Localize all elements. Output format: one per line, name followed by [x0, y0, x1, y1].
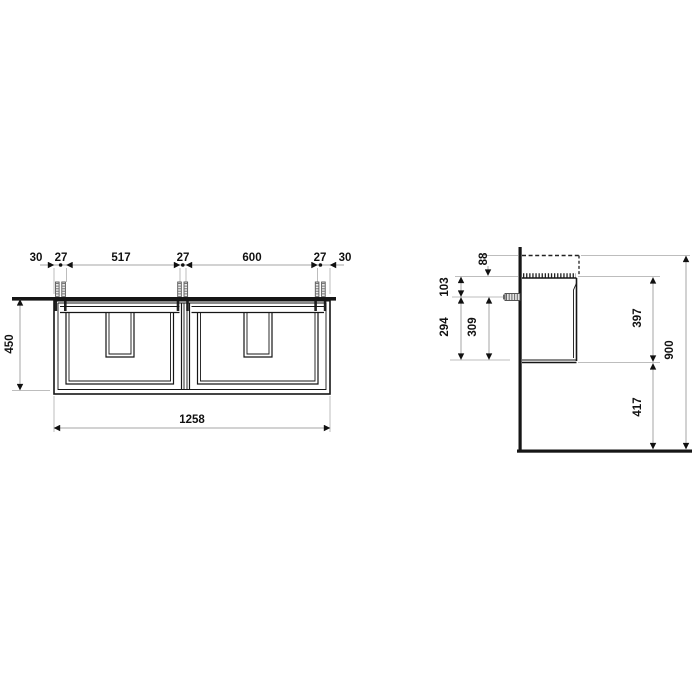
bolt-cap — [503, 295, 505, 300]
drawer-right-box-inner — [201, 313, 316, 382]
left-compartment — [60, 307, 180, 385]
wall-anchor-bolt — [452, 294, 520, 301]
screw — [62, 282, 66, 298]
screw-pair-middle — [178, 282, 188, 298]
front-height-dimension: 450 — [4, 300, 50, 391]
drawing-page: 30 27 517 27 600 27 30 — [0, 0, 700, 700]
dim-label-294: 294 — [439, 317, 451, 337]
front-cabinet — [54, 301, 330, 394]
cabinet-side-outline — [522, 276, 577, 363]
dim-label-88: 88 — [478, 252, 490, 265]
drawer-left-box — [66, 313, 174, 385]
dim-label-103: 103 — [439, 277, 451, 296]
front-mounting-screws — [56, 282, 326, 298]
dim-label-27-mid: 27 — [177, 252, 190, 264]
dim-label-900: 900 — [664, 340, 676, 359]
side-extension-lines — [450, 256, 690, 363]
screw — [56, 282, 60, 298]
floor-line — [517, 450, 692, 453]
front-width-dimension: 1258 — [54, 396, 330, 432]
dim-294: 294 — [439, 298, 461, 360]
dim-900: 900 — [664, 256, 686, 449]
right-compartment — [192, 307, 325, 385]
dim-88: 88 — [478, 252, 490, 275]
drawer-right-siphon-cutout — [244, 313, 272, 358]
dim-397: 397 — [632, 278, 653, 362]
screw-pair-left — [56, 282, 66, 298]
drawer-right-box — [198, 313, 319, 385]
dim-label-30-left: 30 — [30, 252, 43, 264]
dim-label-27-right: 27 — [314, 252, 327, 264]
dim-label-1258: 1258 — [179, 414, 205, 426]
side-view: 88 103 294 309 397 417 900 — [439, 247, 692, 453]
technical-drawing: 30 27 517 27 600 27 30 — [0, 0, 700, 700]
wall-line — [519, 247, 522, 452]
bracket — [55, 302, 58, 312]
divider-panels — [182, 303, 190, 390]
screw — [184, 282, 188, 298]
drawer-left-siphon-cutout-inner — [109, 313, 131, 355]
drawer-left-siphon-cutout — [106, 313, 134, 358]
dim-label-309: 309 — [467, 317, 479, 336]
dim-417: 417 — [632, 364, 653, 450]
front-top-dimension-chain: 30 27 517 27 600 27 30 — [30, 252, 352, 294]
dim-label-417: 417 — [632, 397, 644, 416]
washbasin-dashed-outline — [522, 256, 579, 276]
cabinet-outline — [54, 301, 330, 394]
screw — [178, 282, 182, 298]
drawer-left-box-inner — [69, 313, 171, 382]
dim-label-30-right: 30 — [339, 252, 352, 264]
dim-label-517: 517 — [111, 252, 130, 264]
screw-pair-right — [315, 282, 325, 298]
dim-label-27-left: 27 — [55, 252, 68, 264]
screw — [315, 282, 319, 298]
front-view: 30 27 517 27 600 27 30 — [4, 252, 351, 432]
dim-label-600: 600 — [242, 252, 261, 264]
dim-103: 103 — [439, 277, 461, 297]
drawer-right-siphon-cutout-inner — [247, 313, 269, 355]
dim-309: 309 — [467, 298, 489, 360]
dim-label-450: 450 — [4, 334, 16, 353]
screw — [322, 282, 326, 298]
dim-label-397: 397 — [632, 308, 644, 327]
